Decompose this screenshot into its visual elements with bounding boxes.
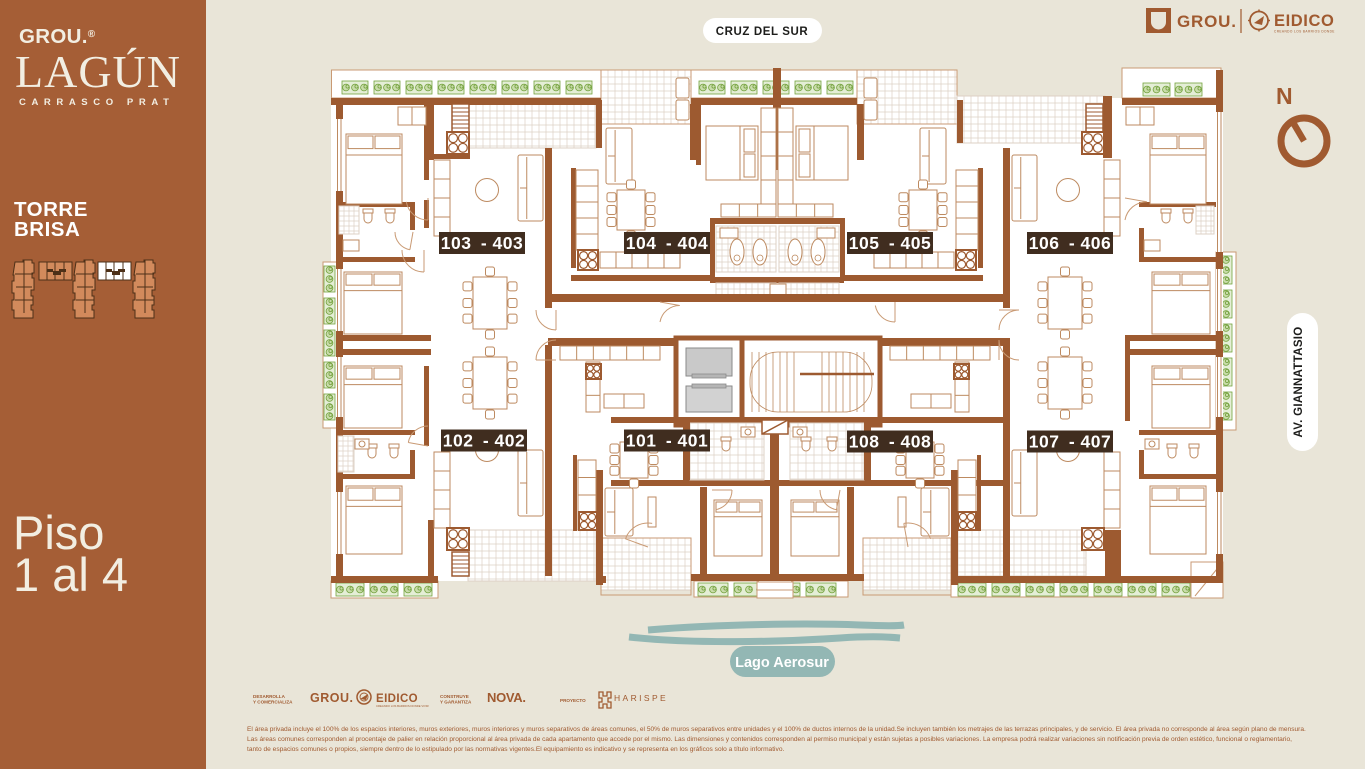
svg-text:N: N bbox=[1276, 83, 1293, 109]
svg-text:TORREBRISA: TORREBRISA bbox=[14, 198, 88, 241]
svg-text:108 - 408: 108 - 408 bbox=[849, 432, 931, 452]
svg-text:102 - 402: 102 - 402 bbox=[443, 431, 525, 451]
svg-text:CARRASCO PRAT: CARRASCO PRAT bbox=[19, 97, 174, 108]
svg-text:CREANDO LOS BARRIOS DONDE: CREANDO LOS BARRIOS DONDE bbox=[1274, 30, 1335, 34]
svg-text:103 - 403: 103 - 403 bbox=[441, 233, 523, 253]
svg-text:GROU.: GROU. bbox=[310, 691, 353, 705]
svg-text:CREANDO LOS BARRIOS DONDE VIVI: CREANDO LOS BARRIOS DONDE VIVIR bbox=[376, 704, 429, 708]
svg-text:CONSTRUYEY GARANTIZA: CONSTRUYEY GARANTIZA bbox=[440, 694, 472, 704]
svg-text:LAGÚN: LAGÚN bbox=[15, 46, 181, 97]
svg-text:106 - 406: 106 - 406 bbox=[1029, 233, 1111, 253]
svg-text:AV. GIANNATTASIO: AV. GIANNATTASIO bbox=[1293, 326, 1305, 437]
svg-text:PROYECTO: PROYECTO bbox=[560, 698, 586, 703]
svg-text:HARISPE: HARISPE bbox=[614, 693, 668, 703]
svg-text:Lago Aerosur: Lago Aerosur bbox=[735, 655, 829, 671]
svg-text:CRUZ DEL SUR: CRUZ DEL SUR bbox=[716, 26, 809, 38]
svg-text:NOVA.: NOVA. bbox=[487, 690, 526, 705]
svg-text:107 - 407: 107 - 407 bbox=[1029, 432, 1111, 452]
svg-text:104 - 404: 104 - 404 bbox=[626, 233, 708, 253]
svg-text:105 - 405: 105 - 405 bbox=[849, 233, 931, 253]
svg-text:GROU.®: GROU.® bbox=[19, 25, 96, 48]
svg-text:EIDICO: EIDICO bbox=[1274, 12, 1334, 30]
svg-text:101 - 401: 101 - 401 bbox=[626, 431, 708, 451]
svg-text:GROU.: GROU. bbox=[1177, 12, 1237, 31]
